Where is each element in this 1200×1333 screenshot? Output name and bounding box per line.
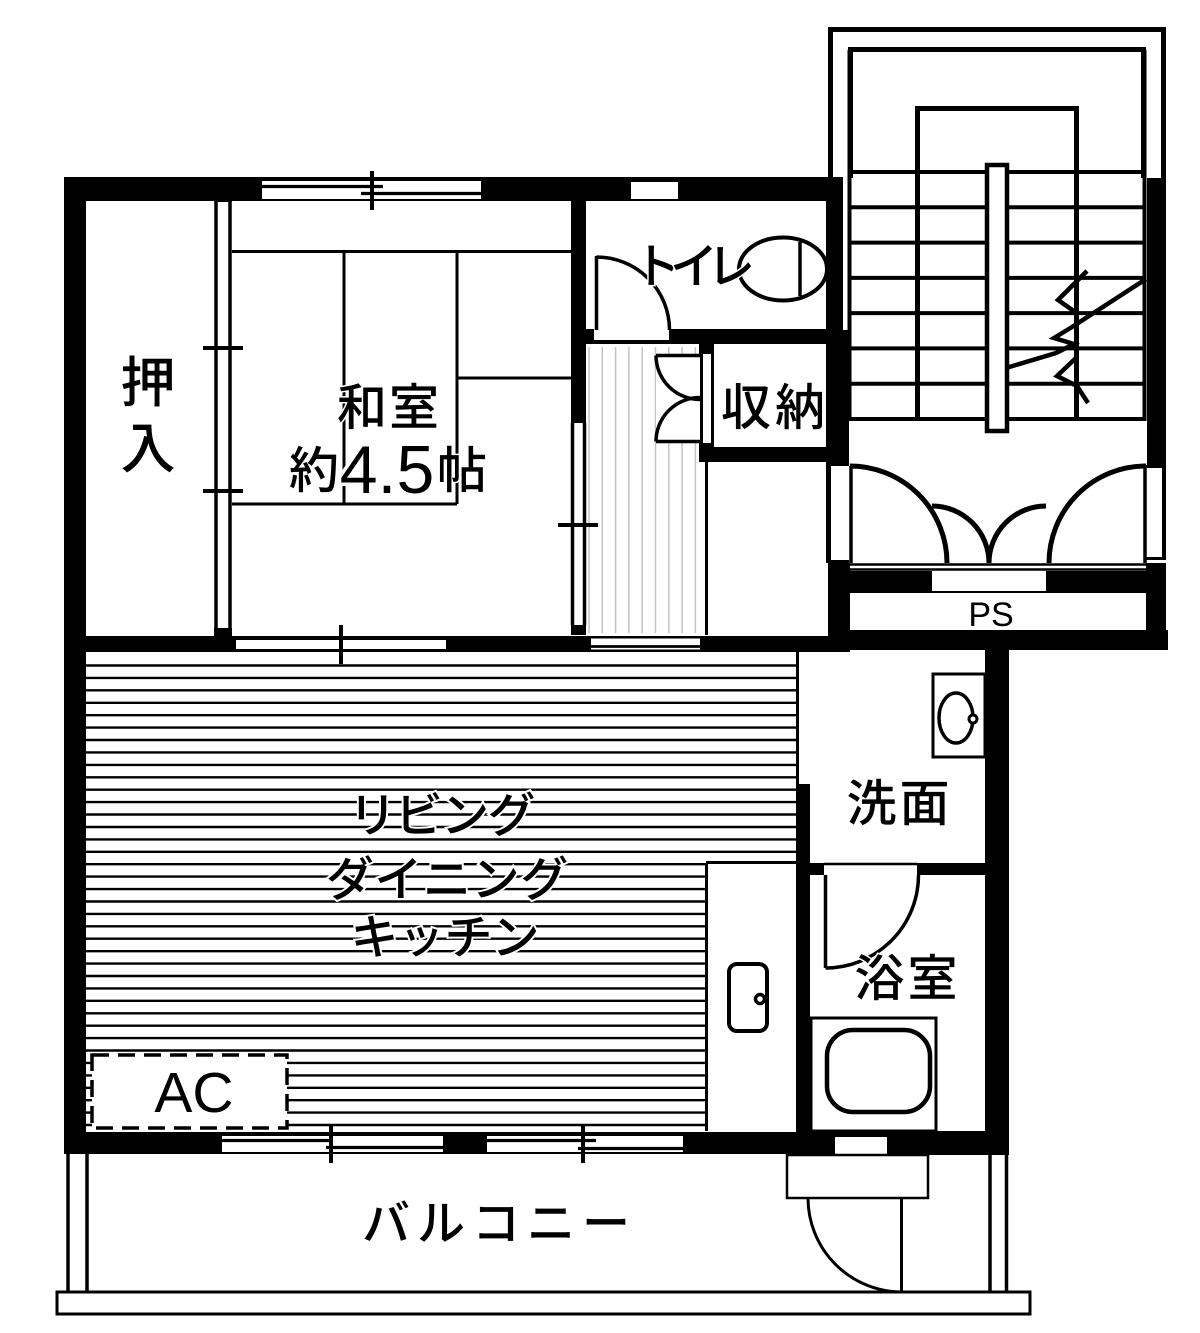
svg-text:4.5: 4.5: [340, 432, 435, 508]
svg-text:PS: PS: [968, 596, 1013, 634]
svg-text:AC: AC: [154, 1061, 233, 1125]
